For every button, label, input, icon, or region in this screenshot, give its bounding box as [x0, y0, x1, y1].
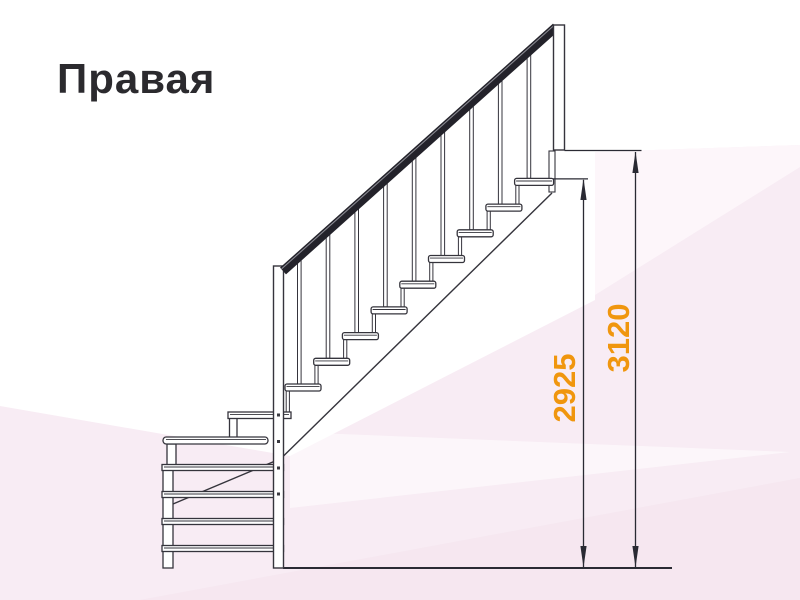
background-shapes: [0, 145, 800, 600]
page-title: Правая: [57, 55, 215, 103]
winder-bar-1: [162, 465, 284, 471]
winder-bar-2: [162, 492, 284, 498]
left-leg-upper: [167, 444, 176, 465]
dim-label-2925: 2925: [547, 354, 582, 423]
entry-tread: [163, 437, 268, 444]
handrail-sheen: [282, 25, 555, 269]
balusters: [298, 54, 531, 384]
staircase-diagram-page: 3120 2925 Правая: [0, 0, 800, 600]
platform-leg: [230, 418, 238, 438]
handrail: [282, 25, 556, 271]
dim-label-3120: 3120: [601, 304, 636, 373]
top-post: [554, 25, 565, 150]
arrow-up-2925: [580, 179, 586, 201]
newel-post-body: [274, 266, 284, 568]
winder-bar-4: [162, 546, 284, 552]
newel-post: [274, 266, 284, 568]
winder-bar-3: [162, 519, 284, 525]
handrail-bar: [283, 27, 556, 271]
